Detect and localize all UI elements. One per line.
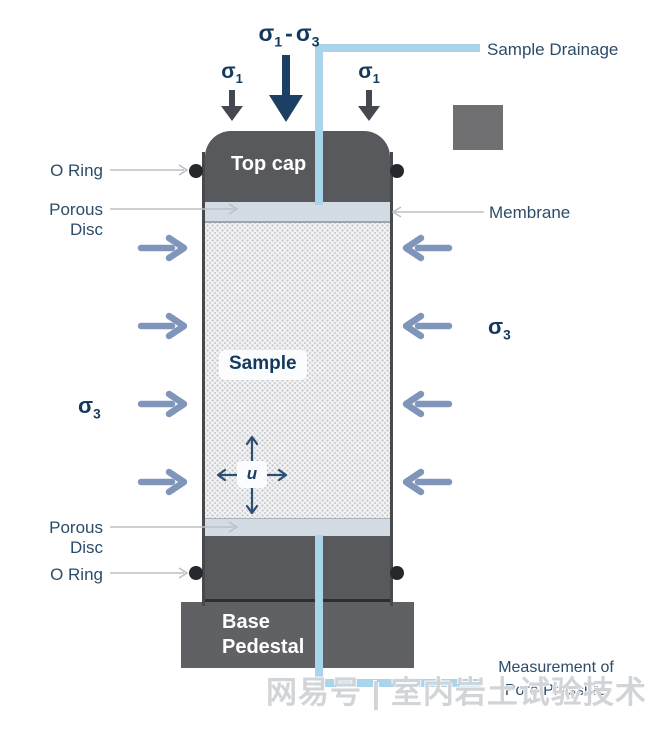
o-ring-pointer-arrow-icon (110, 164, 190, 176)
triaxial-cell-diagram: Top cap Base Pedestal (0, 0, 645, 731)
confining-stress-arrow-icon (138, 235, 188, 261)
drainage-tube-top-horizontal (315, 44, 480, 52)
confining-stress-label-right: σ3 (488, 314, 511, 342)
membrane-left (202, 152, 205, 606)
base-pedestal-label: Base Pedestal (222, 610, 304, 660)
drainage-tube-bottom-vertical (315, 535, 323, 687)
porous-disc-pointer-arrow-icon (110, 521, 240, 533)
o-ring-dot-bottom-left (189, 566, 203, 580)
confining-stress-arrow-icon (138, 391, 188, 417)
membrane-right (390, 152, 393, 606)
o-ring-label-bottom: O Ring (17, 565, 103, 585)
sample-label: Sample (219, 350, 307, 380)
confining-stress-arrow-icon (138, 313, 188, 339)
o-ring-dot-top-left (189, 164, 203, 178)
membrane-label: Membrane (489, 203, 570, 223)
axial-stress-label-left: σ1 (215, 60, 249, 86)
legend-square (453, 105, 503, 150)
base-pedestal-line2: Pedestal (222, 635, 304, 660)
confining-stress-arrow-icon (402, 235, 452, 261)
deviator-stress-arrow-icon (269, 55, 303, 123)
confining-stress-label-left: σ3 (78, 393, 101, 421)
deviator-stress-label: σ1-σ3 (252, 20, 326, 51)
porous-disc-pointer-arrow-icon (110, 203, 240, 215)
o-ring-dot-bottom-right (390, 566, 404, 580)
o-ring-dot-top-right (390, 164, 404, 178)
top-cap-label: Top cap (231, 153, 306, 176)
axial-stress-arrow-left-icon (221, 90, 243, 122)
axial-stress-label-right: σ1 (352, 60, 386, 86)
confining-stress-arrow-icon (402, 313, 452, 339)
base-pedestal-line1: Base (222, 610, 304, 635)
confining-stress-arrow-icon (402, 391, 452, 417)
sample-drainage-label: Sample Drainage (487, 40, 618, 60)
porous-disc-label-bottom: Porous Disc (17, 518, 103, 558)
axial-stress-arrow-right-icon (358, 90, 380, 122)
confining-stress-arrow-icon (138, 469, 188, 495)
o-ring-label-top: O Ring (17, 161, 103, 181)
membrane-pointer-arrow-icon (392, 206, 484, 218)
drainage-tube-top-vertical (315, 44, 323, 205)
watermark-text: 网易号 | 室内岩土试验技术分享 (266, 667, 645, 712)
pore-pressure-symbol: u (237, 461, 267, 488)
porous-disc-label-top: Porous Disc (17, 200, 103, 240)
confining-stress-arrow-icon (402, 469, 452, 495)
pedestal-stem (205, 536, 390, 602)
o-ring-pointer-arrow-icon (110, 567, 190, 579)
